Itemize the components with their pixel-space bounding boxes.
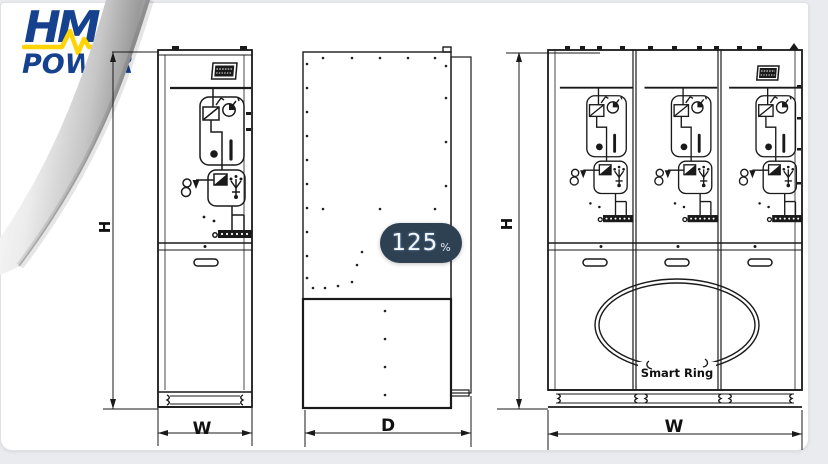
mimic-diagram <box>729 88 803 223</box>
nameplate-icon <box>757 66 779 80</box>
cabinet-outline <box>158 46 252 407</box>
foot-icon <box>558 394 560 403</box>
door-handle-icon <box>583 259 607 266</box>
nameplate-icon <box>212 63 237 79</box>
foot-icon <box>241 395 243 405</box>
lower-compartment <box>303 299 451 408</box>
front-view-single-panel <box>103 46 252 446</box>
door-handle-icon <box>665 259 689 266</box>
lifting-lug-icon <box>789 43 799 50</box>
foot-icon <box>635 394 648 403</box>
cabinet-outline <box>548 43 802 390</box>
door-handle-icon <box>194 259 218 266</box>
height-dimension-label: H <box>96 218 114 236</box>
depth-dimension-label: D <box>363 416 413 436</box>
foot-icon <box>790 394 792 403</box>
smart-ring-annotation: Smart Ring <box>630 366 724 380</box>
foot-icon <box>719 394 732 403</box>
foot-icon <box>167 395 169 405</box>
ring-main-loop-icon <box>595 279 759 380</box>
rear-panel <box>451 57 471 393</box>
zoom-level-value: 125 <box>391 230 438 256</box>
mimic-diagram <box>170 88 252 238</box>
zoom-level-badge[interactable]: 125 % <box>380 223 462 263</box>
front-view-three-panel <box>497 43 803 450</box>
door-handle-icon <box>748 259 772 266</box>
door-fronts <box>548 243 802 266</box>
door-front <box>158 243 252 266</box>
cabinet-base <box>548 390 802 407</box>
width-dimension-label: W <box>649 417 699 437</box>
cabinet-base <box>158 392 252 407</box>
height-dimension-label: H <box>498 215 516 233</box>
percent-icon: % <box>440 241 450 254</box>
mimic-diagram <box>645 88 719 223</box>
width-dimension-label: W <box>177 419 227 439</box>
mimic-diagram <box>560 88 634 223</box>
page-background: HM POWER <box>0 0 828 464</box>
